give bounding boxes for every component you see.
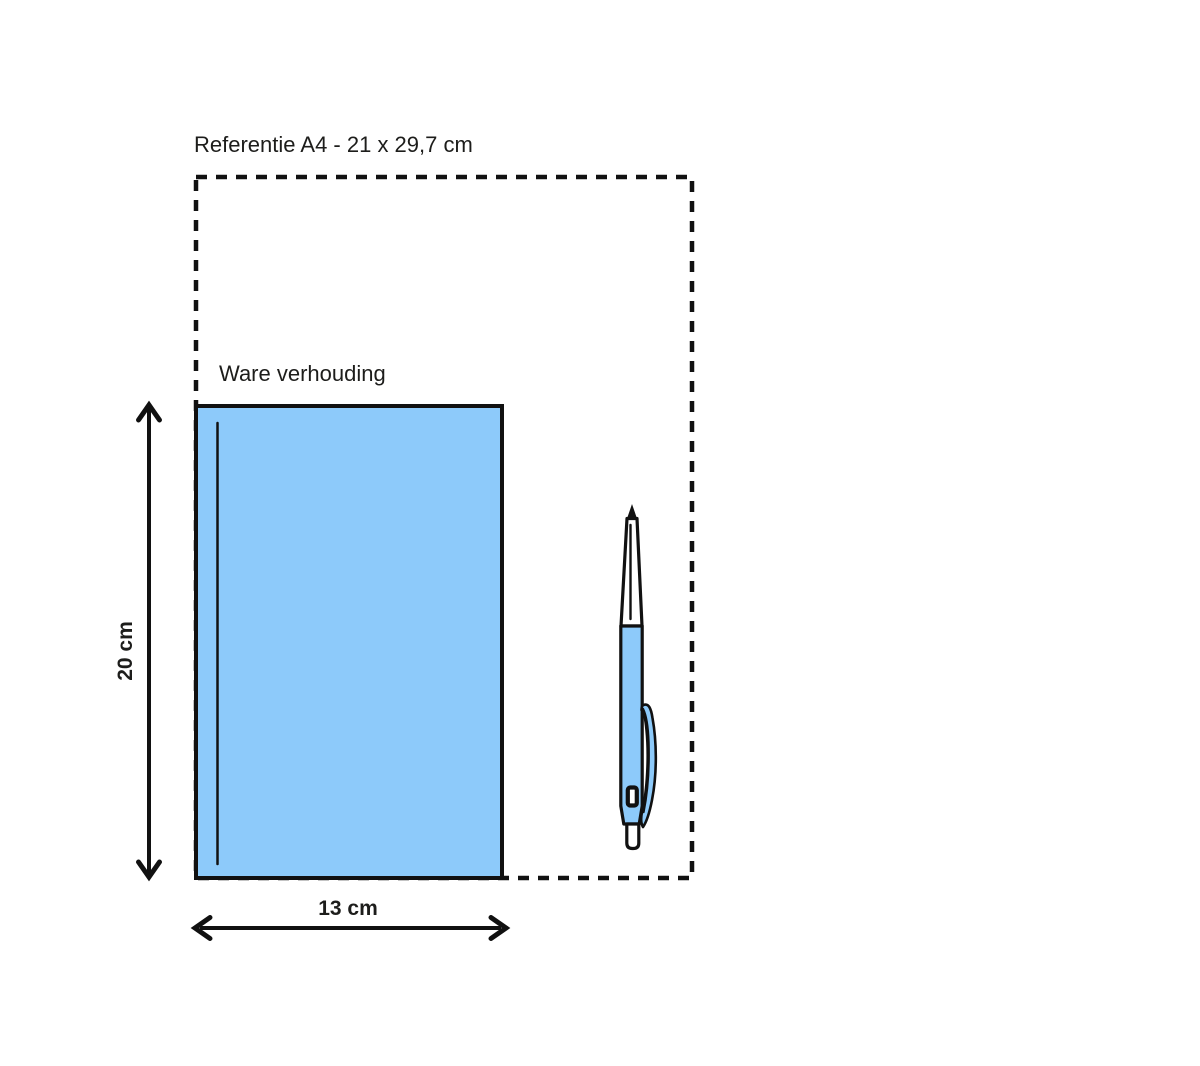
scale-label: Ware verhouding [219,361,386,387]
pen-icon [621,504,656,849]
pen-button-slot [628,788,637,806]
width-label: 13 cm [278,896,418,921]
size-comparison-diagram: Referentie A4 - 21 x 29,7 cm Ware verhou… [0,0,1200,1066]
pen-tip [627,504,638,520]
height-arrow [139,405,160,877]
diagram-shapes [0,0,1200,1066]
height-label: 20 cm [113,611,141,691]
product-rectangle [196,406,502,878]
reference-label: Referentie A4 - 21 x 29,7 cm [194,132,473,158]
pen-plunger [627,824,639,849]
